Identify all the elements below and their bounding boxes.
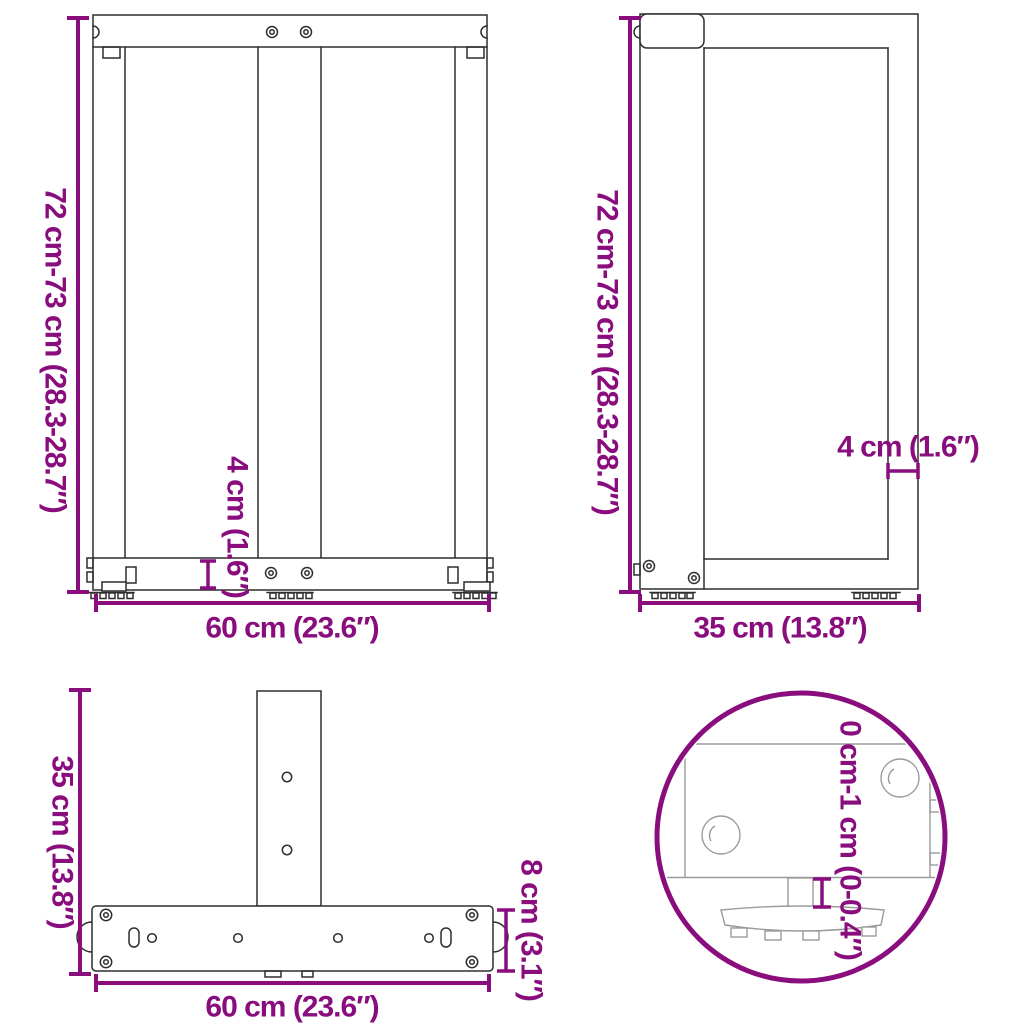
front-structure bbox=[87, 15, 497, 599]
top-width-label: 60 cm (23.6″) bbox=[205, 991, 378, 1024]
top-view: 35 cm (13.8″) 8 cm (3.1″) 60 cm (23.6″) bbox=[46, 690, 548, 1024]
top-bar-width-dimension: 8 cm (3.1″) bbox=[497, 859, 548, 1001]
side-tube-thickness-label: 4 cm (1.6″) bbox=[837, 431, 979, 464]
side-structure bbox=[634, 14, 918, 599]
top-bar-width-label: 8 cm (3.1″) bbox=[515, 859, 548, 1001]
front-serrated-foot-center bbox=[267, 593, 313, 599]
front-left-bracket-tab bbox=[103, 47, 120, 58]
front-right-foot-pad bbox=[464, 582, 490, 591]
front-right-bracket-tab bbox=[467, 47, 484, 58]
side-height-dimension: 72 cm-73 cm (28.3-28.7″) bbox=[591, 18, 642, 592]
detail-right-tab-2 bbox=[930, 853, 941, 865]
front-view: 72 cm-73 cm (28.3-28.7″) 4 cm (1.6″) 60 … bbox=[39, 15, 498, 645]
front-left-foot-pad bbox=[102, 582, 126, 591]
side-view: 72 cm-73 cm (28.3-28.7″) 4 cm (1.6″) 35 … bbox=[591, 14, 979, 645]
detail-adjuster-stem bbox=[788, 878, 813, 907]
front-bar-thickness-label: 4 cm (1.6″) bbox=[221, 456, 254, 598]
detail-drawing bbox=[661, 744, 941, 940]
top-structure bbox=[77, 691, 508, 977]
side-edge-tab bbox=[634, 564, 640, 575]
detail-screw-hole-1 bbox=[702, 816, 740, 854]
side-serrated-foot-left bbox=[650, 593, 695, 599]
detail-circle-border bbox=[657, 693, 945, 981]
top-bottom-tab-1 bbox=[265, 971, 281, 977]
side-depth-dimension: 35 cm (13.8″) bbox=[640, 594, 919, 645]
detail-adjustment-label: 0 cm-1 cm (0-0.4″) bbox=[834, 720, 867, 960]
foot-detail-view: 0 cm-1 cm (0-0.4″) bbox=[657, 693, 945, 981]
front-bar-thickness-dimension: 4 cm (1.6″) bbox=[200, 456, 254, 598]
front-height-dimension: 72 cm-73 cm (28.3-28.7″) bbox=[39, 18, 90, 592]
detail-screw-hole-2 bbox=[881, 759, 919, 797]
side-serrated-foot-right bbox=[852, 593, 900, 599]
dimension-diagram: 72 cm-73 cm (28.3-28.7″) 4 cm (1.6″) 60 … bbox=[0, 0, 1024, 1024]
top-width-dimension: 60 cm (23.6″) bbox=[96, 974, 489, 1024]
top-depth-dimension: 35 cm (13.8″) bbox=[46, 690, 92, 974]
side-leg-cap bbox=[640, 14, 704, 48]
side-depth-label: 35 cm (13.8″) bbox=[693, 612, 866, 645]
side-height-label: 72 cm-73 cm (28.3-28.7″) bbox=[591, 189, 624, 515]
front-width-dimension: 60 cm (23.6″) bbox=[96, 594, 489, 645]
front-leg-columns bbox=[93, 47, 487, 558]
side-cap-notch bbox=[634, 26, 640, 38]
front-bottom-bar bbox=[93, 558, 487, 590]
top-depth-label: 35 cm (13.8″) bbox=[46, 755, 79, 928]
top-leg-column bbox=[257, 691, 321, 906]
front-top-bar bbox=[93, 15, 487, 47]
side-outer-frame bbox=[640, 14, 918, 589]
top-bottom-tab-2 bbox=[302, 971, 313, 977]
front-height-label: 72 cm-73 cm (28.3-28.7″) bbox=[39, 187, 72, 513]
diagram-canvas: 72 cm-73 cm (28.3-28.7″) 4 cm (1.6″) 60 … bbox=[0, 0, 1024, 1024]
front-width-label: 60 cm (23.6″) bbox=[205, 612, 378, 645]
